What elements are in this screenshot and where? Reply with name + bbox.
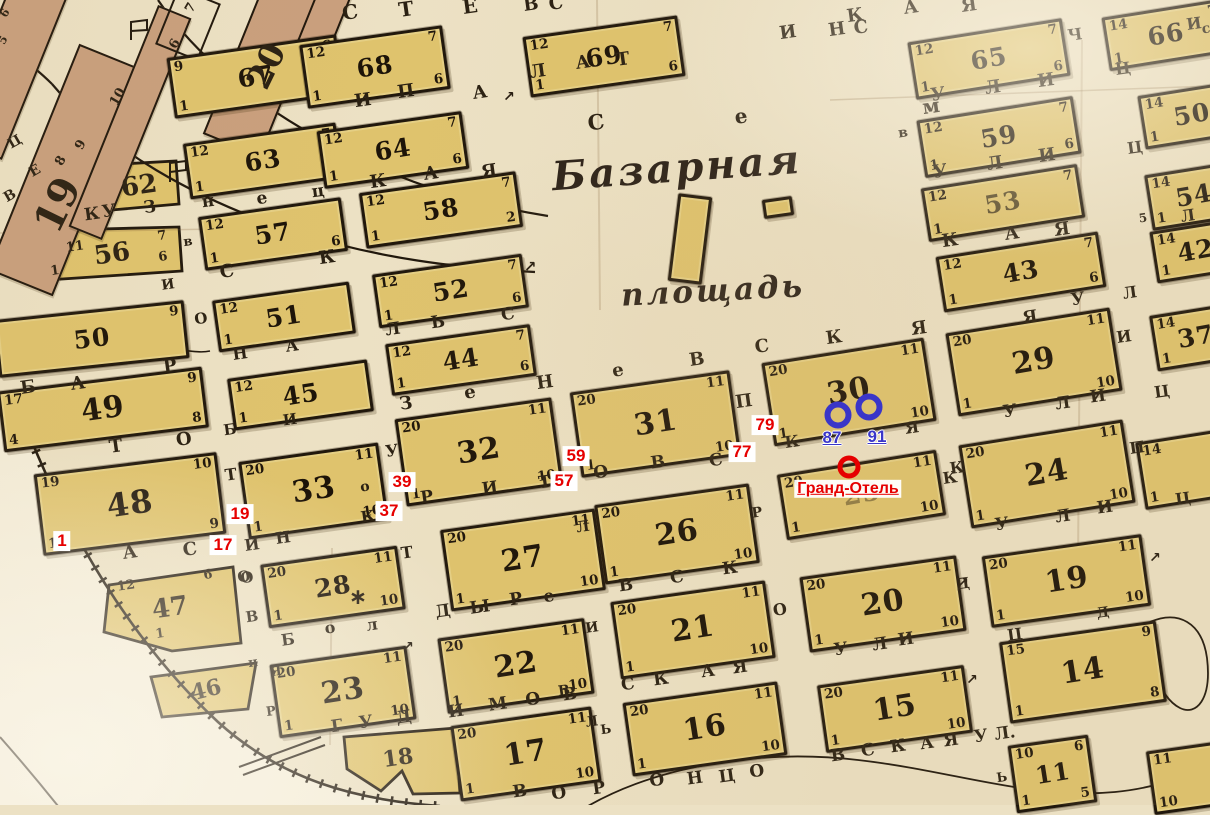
red-annotation-59: 59 (563, 446, 590, 466)
red-annotation-1: 1 (53, 531, 70, 551)
annotation-overlay: 797759573937191718791Гранд-Отель (0, 0, 1210, 805)
red-annotation-39: 39 (389, 472, 416, 492)
hotel-label[interactable]: Гранд-Отель (794, 480, 901, 498)
map-link-87[interactable]: 87 (823, 428, 842, 448)
hotel-circle-marker[interactable] (838, 456, 861, 479)
red-annotation-57: 57 (551, 471, 578, 491)
red-annotation-17: 17 (210, 535, 237, 555)
red-annotation-79: 79 (752, 415, 779, 435)
blue-circle-marker[interactable] (825, 402, 852, 429)
red-annotation-19: 19 (227, 504, 254, 524)
map-link-91[interactable]: 91 (868, 427, 887, 447)
red-annotation-37: 37 (376, 501, 403, 521)
historical-city-map: Базарная площадь 67916568121766912176651… (0, 0, 1210, 805)
blue-circle-marker[interactable] (856, 394, 883, 421)
red-annotation-77: 77 (729, 442, 756, 462)
